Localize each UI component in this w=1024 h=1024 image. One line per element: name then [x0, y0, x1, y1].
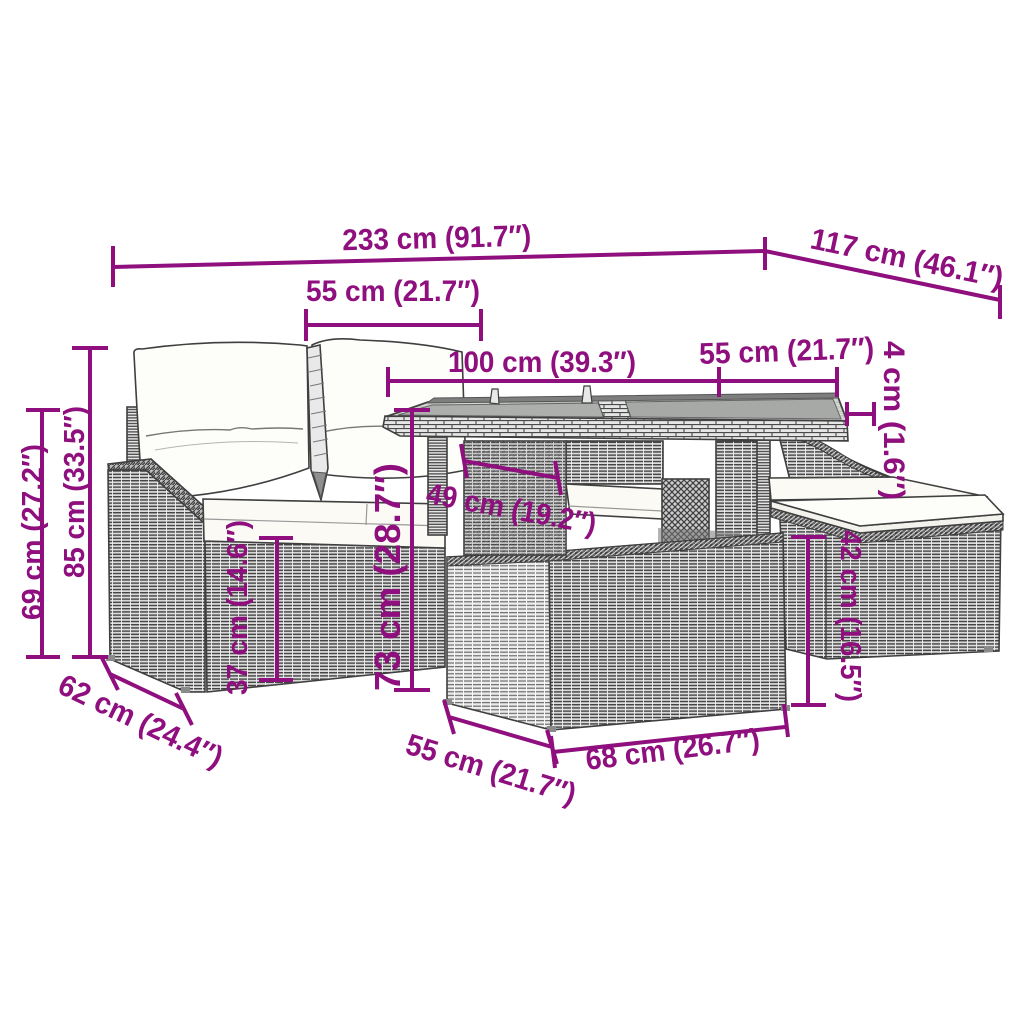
svg-text:69 cm (27.2″): 69 cm (27.2″)	[17, 444, 49, 620]
svg-text:233 cm (91.7″): 233 cm (91.7″)	[342, 220, 532, 258]
svg-text:4 cm (1.6″): 4 cm (1.6″)	[877, 341, 910, 500]
svg-text:73 cm (28.7″): 73 cm (28.7″)	[367, 463, 408, 691]
svg-text:37 cm (14.6″): 37 cm (14.6″)	[222, 520, 254, 695]
svg-text:85 cm (33.5″): 85 cm (33.5″)	[59, 406, 91, 578]
svg-text:100 cm (39.3″): 100 cm (39.3″)	[448, 346, 636, 379]
svg-text:55 cm (21.7″): 55 cm (21.7″)	[306, 275, 480, 308]
svg-text:42 cm (16.5″): 42 cm (16.5″)	[834, 530, 866, 702]
svg-text:55 cm (21.7″): 55 cm (21.7″)	[699, 332, 875, 371]
